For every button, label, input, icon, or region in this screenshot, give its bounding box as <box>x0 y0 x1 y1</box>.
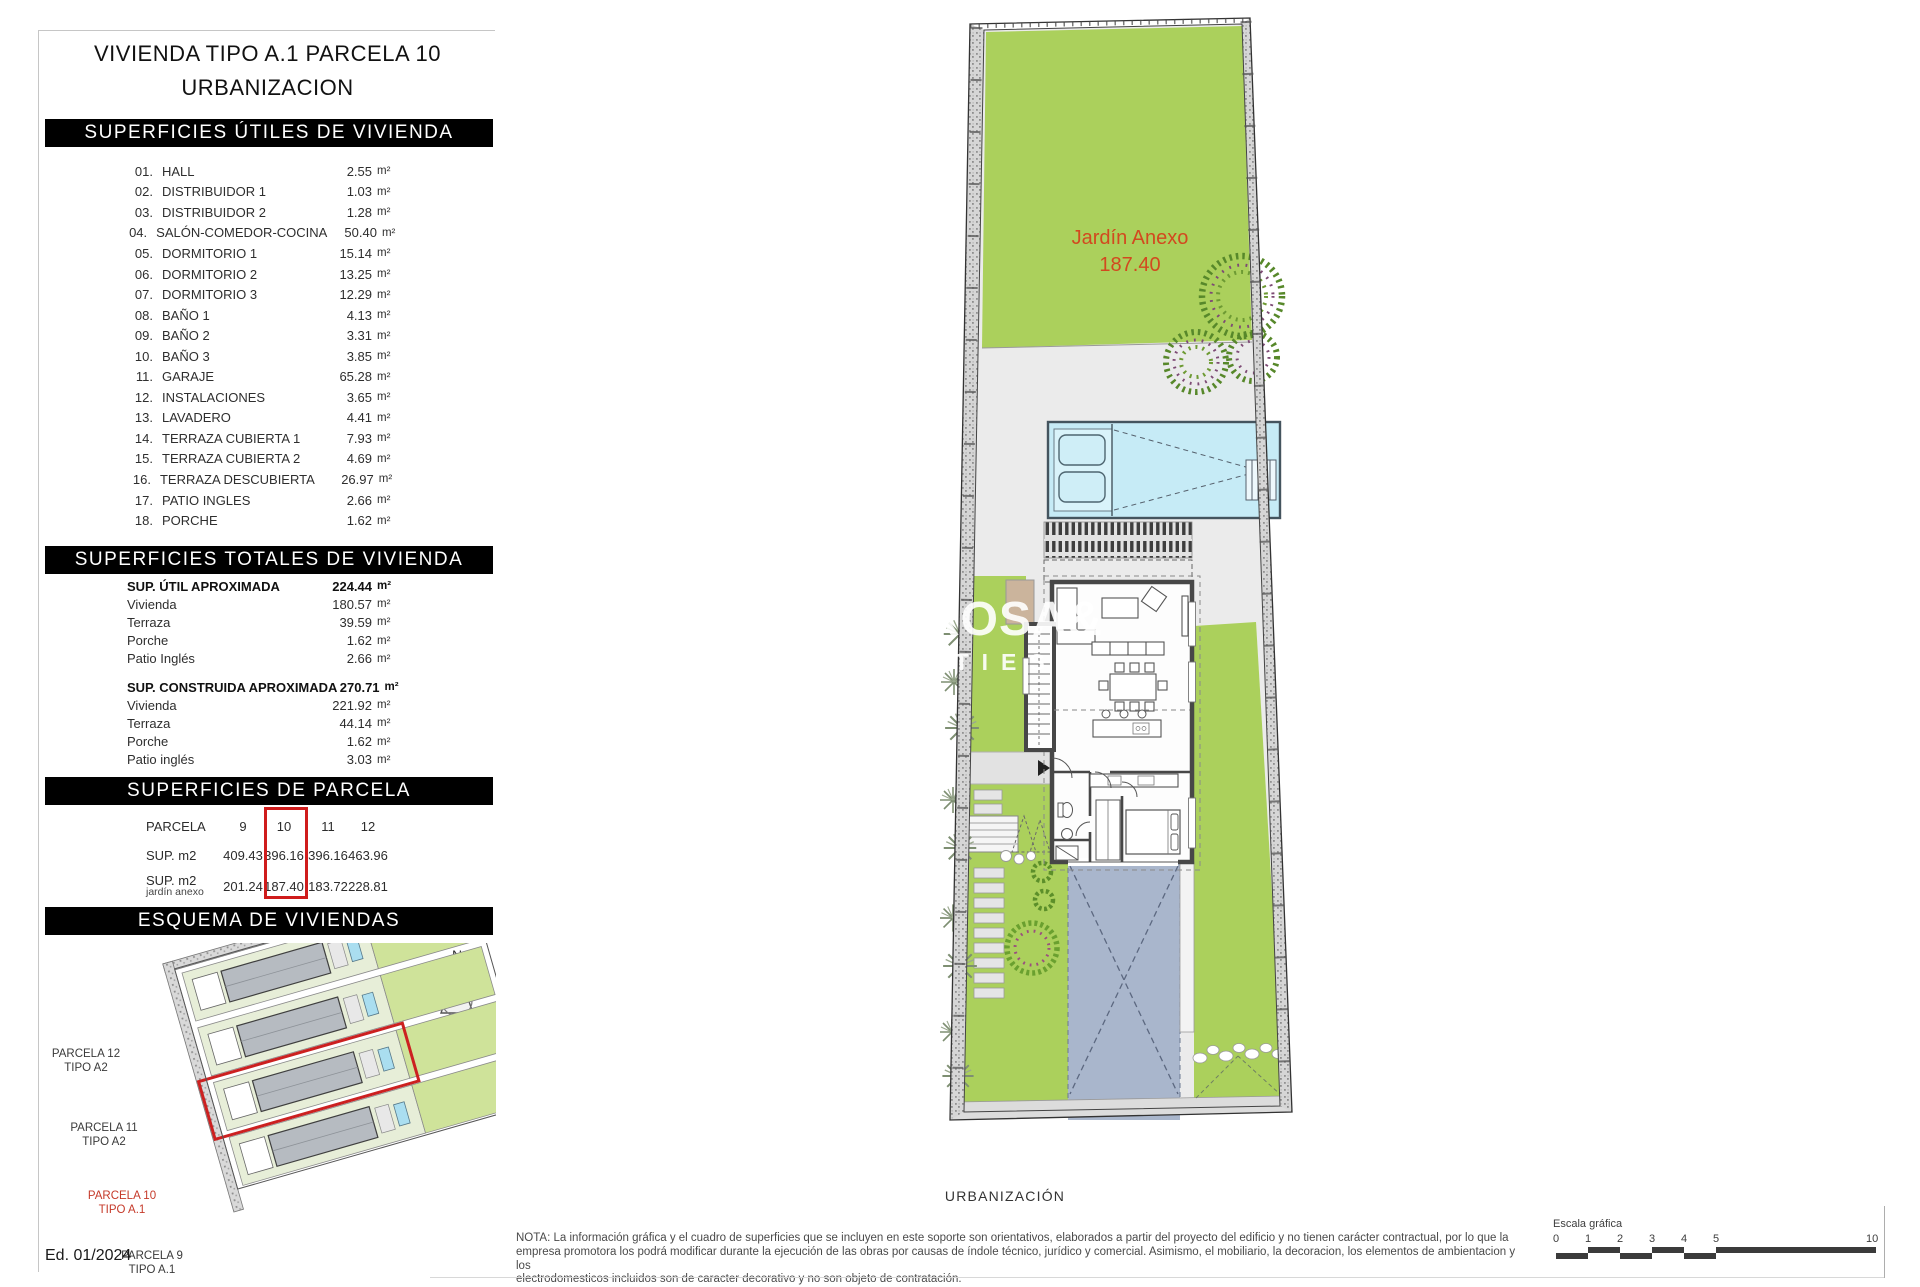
titleblock-divider <box>1884 1206 1885 1278</box>
garden-area-value: 187.40 <box>1099 254 1160 276</box>
data-panel: VIVIENDA TIPO A.1 PARCELA 10 URBANIZACIO… <box>38 30 495 1272</box>
totals-list: SUP. ÚTIL APROXIMADA224.44m² Vivienda180… <box>39 577 496 769</box>
scale-ticks: 0 1 2 3 4 5 10 <box>1553 1233 1893 1247</box>
table-row: Patio Inglés2.66m² <box>39 650 496 668</box>
table-row: 01.HALL2.55m² <box>39 161 496 182</box>
table-row: 10.BAÑO 33.85m² <box>39 346 496 367</box>
table-row: 12.INSTALACIONES3.65m² <box>39 387 496 408</box>
section-header-superficies-utiles: SUPERFICIES ÚTILES DE VIVIENDA <box>45 119 493 147</box>
edition-label: Ed. 01/2024 <box>45 1247 131 1265</box>
table-row: 03.DISTRIBUIDOR 21.28m² <box>39 202 496 223</box>
entrance-walkway <box>966 752 1052 784</box>
site-plan-drawing: Jardín Anexo 187.40 <box>940 10 1335 1152</box>
totals-group-header: SUP. ÚTIL APROXIMADA224.44m² <box>39 577 496 595</box>
table-row: Terraza44.14m² <box>39 714 496 732</box>
table-row: 08.BAÑO 14.13m² <box>39 305 496 326</box>
legal-note: NOTA: La información gráfica y el cuadro… <box>516 1232 1531 1287</box>
sun-lounger <box>1059 472 1105 502</box>
table-row: Porche1.62m² <box>39 632 496 650</box>
table-row: Terraza39.59m² <box>39 613 496 631</box>
sun-lounger <box>1059 435 1105 465</box>
kitchen-counter <box>1090 774 1178 787</box>
parcel-column: 12 <box>340 819 396 834</box>
garden-label: Jardín Anexo <box>1072 227 1189 249</box>
site-plan: Jardín Anexo 187.40 <box>940 10 1335 1152</box>
table-row: 15.TERRAZA CUBIERTA 24.69m² <box>39 449 496 470</box>
sheet-title-line1: VIVIENDA TIPO A.1 PARCELA 10 <box>39 41 496 67</box>
bed <box>1126 810 1180 854</box>
wardrobe <box>1096 800 1120 860</box>
table-row: 04.SALÓN-COMEDOR-COCINA50.40m² <box>39 223 496 244</box>
pool <box>1048 422 1280 518</box>
section-header-superficies-parcela: SUPERFICIES DE PARCELA <box>45 777 493 805</box>
table-row: 17.PATIO INGLES2.66m² <box>39 490 496 511</box>
room-list: 01.HALL2.55m² 02.DISTRIBUIDOR 11.03m² 03… <box>39 161 496 531</box>
sup-value: 463.96 <box>340 848 396 863</box>
table-row: Patio inglés3.03m² <box>39 751 496 769</box>
table-row: 16.TERRAZA DESCUBIERTA26.97m² <box>39 469 496 490</box>
table-row: 05.DORMITORIO 115.14m² <box>39 243 496 264</box>
garden-stairs <box>968 816 1018 852</box>
planter <box>1006 580 1034 624</box>
sheet-bottom-rule <box>430 1277 1884 1278</box>
table-row: 07.DORMITORIO 312.29m² <box>39 284 496 305</box>
table-row: Vivienda221.92m² <box>39 696 496 714</box>
scale-bars <box>1553 1247 1893 1259</box>
parcel-row-header: PARCELA <box>146 819 206 834</box>
side-path <box>1180 862 1194 1032</box>
table-row: 02.DISTRIBUIDOR 11.03m² <box>39 182 496 203</box>
table-row: 14.TERRAZA CUBIERTA 17.93m² <box>39 428 496 449</box>
scale-label: Escala gráfica <box>1553 1218 1893 1230</box>
sheet-title-line2: URBANIZACION <box>39 75 496 101</box>
plan-sheet: { "title": { "line1": "VIVIENDA TIPO A.1… <box>0 0 1920 1280</box>
sup-row-label: SUP. m2 <box>146 848 196 863</box>
table-row: 18.PORCHE1.62m² <box>39 510 496 531</box>
parcel-label-11: PARCELA 11 TIPO A2 <box>49 1121 159 1149</box>
table-row: 06.DORMITORIO 213.25m² <box>39 264 496 285</box>
section-header-esquema: ESQUEMA DE VIVIENDAS <box>45 907 493 935</box>
jardin-row-label: SUP. m2jardín anexo <box>146 873 204 898</box>
table-row: 09.BAÑO 23.31m² <box>39 325 496 346</box>
graphic-scale: Escala gráfica 0 1 2 3 4 5 10 <box>1553 1218 1893 1259</box>
parcel-label-12: PARCELA 12 TIPO A2 <box>31 1047 141 1075</box>
table-row: Vivienda180.57m² <box>39 595 496 613</box>
highlighted-parcel-box <box>264 807 308 899</box>
section-header-superficies-totales: SUPERFICIES TOTALES DE VIVIENDA <box>45 546 493 574</box>
table-row: Porche1.62m² <box>39 733 496 751</box>
parcel-label-10: PARCELA 10 TIPO A.1 <box>67 1189 177 1217</box>
parcel-strips <box>163 943 496 1212</box>
totals-group-header: SUP. CONSTRUIDA APROXIMADA270.71m² <box>39 678 496 696</box>
driveway <box>1068 862 1180 1120</box>
table-row: 13.LAVADERO4.41m² <box>39 408 496 429</box>
garden-area <box>982 26 1252 348</box>
plan-caption: URBANIZACIÓN <box>930 1188 1080 1204</box>
jardin-value: 228.81 <box>340 879 396 894</box>
table-row: 11.GARAJE65.28m² <box>39 366 496 387</box>
